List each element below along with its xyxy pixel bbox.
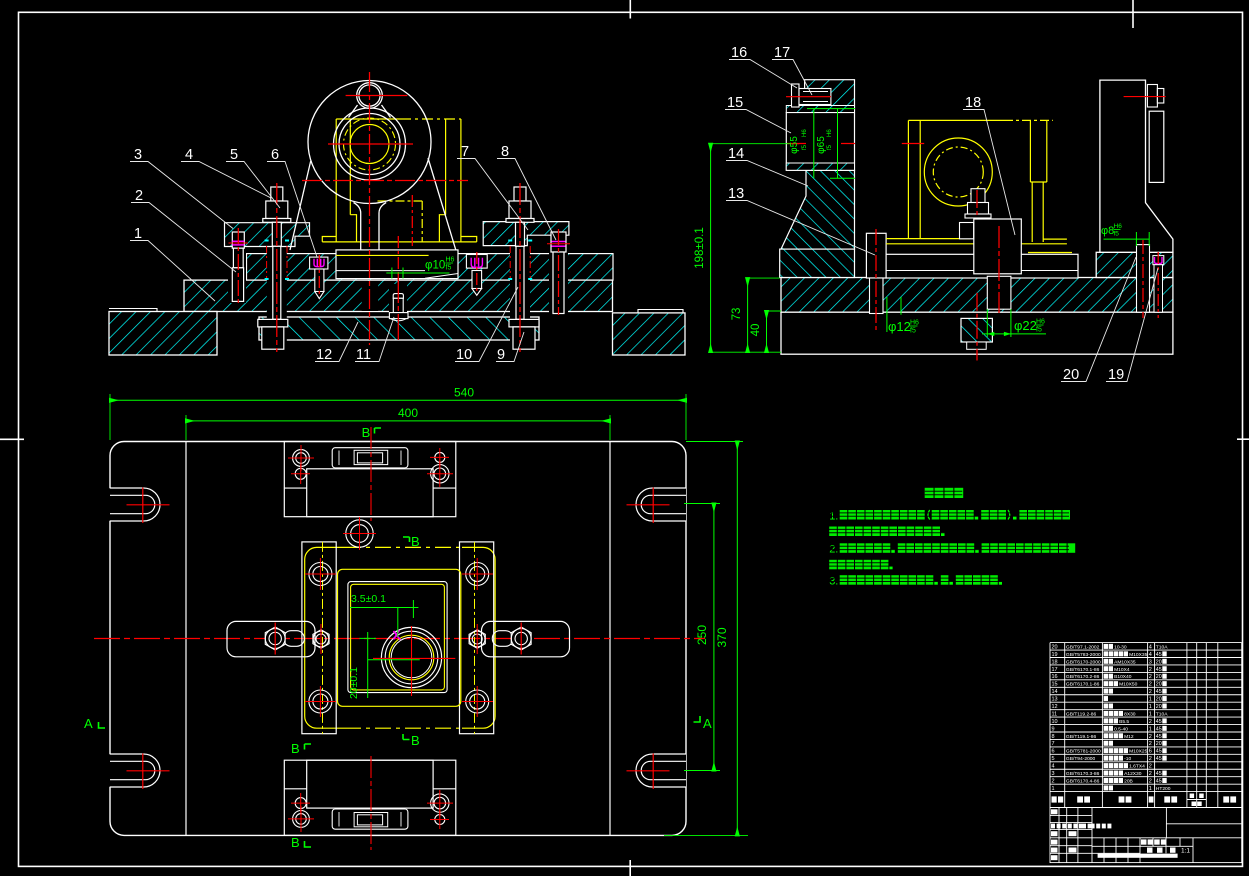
svg-text:6: 6 <box>1149 749 1152 755</box>
svg-text:M12: M12 <box>1124 734 1134 740</box>
svg-text:2: 2 <box>1149 667 1152 673</box>
svg-text:B: B <box>362 425 371 440</box>
svg-text:B: B <box>291 741 300 756</box>
svg-text:2: 2 <box>1149 734 1152 740</box>
svg-text:3: 3 <box>134 147 142 163</box>
svg-text:19: 19 <box>1108 367 1124 383</box>
svg-text:1: 1 <box>134 226 142 242</box>
svg-text:HT200: HT200 <box>1156 786 1171 792</box>
svg-text:20: 20 <box>1156 682 1162 688</box>
svg-text:400: 400 <box>398 406 418 420</box>
svg-text:1.6TX4: 1.6TX4 <box>1129 764 1145 770</box>
svg-text:-10: -10 <box>1124 756 1131 762</box>
svg-text:20: 20 <box>1156 704 1162 710</box>
svg-text:16: 16 <box>1052 674 1058 680</box>
svg-text:M10X50: M10X50 <box>1119 682 1137 688</box>
svg-text:20: 20 <box>1156 659 1162 665</box>
svg-text:GB/T97.1-2002: GB/T97.1-2002 <box>1066 644 1100 650</box>
svg-text:A: A <box>84 716 93 731</box>
svg-text:3: 3 <box>1149 659 1152 665</box>
svg-text:1: 1 <box>1149 711 1152 717</box>
svg-text:B5.5: B5.5 <box>1119 719 1129 725</box>
svg-text:f5: f5 <box>802 144 808 150</box>
svg-text:2: 2 <box>1149 756 1152 762</box>
svg-text:45: 45 <box>1156 667 1162 673</box>
svg-text:20: 20 <box>1063 367 1079 383</box>
svg-text:H6: H6 <box>910 320 919 327</box>
svg-text:250: 250 <box>695 625 709 645</box>
svg-text:f5: f5 <box>1036 327 1042 334</box>
svg-text:45: 45 <box>1156 719 1162 725</box>
svg-text:9: 9 <box>1052 726 1055 732</box>
svg-text:45: 45 <box>1156 779 1162 785</box>
svg-text:M10X4: M10X4 <box>1114 667 1130 673</box>
svg-text:12: 12 <box>1052 704 1058 710</box>
svg-text:45: 45 <box>1156 771 1162 777</box>
svg-text:20: 20 <box>1052 644 1058 650</box>
svg-text:5: 5 <box>230 147 238 163</box>
svg-text:540: 540 <box>454 386 474 400</box>
svg-text:6: 6 <box>271 147 279 163</box>
svg-text:H6: H6 <box>1036 319 1045 326</box>
svg-text:B: B <box>411 733 420 748</box>
svg-text:φ55: φ55 <box>789 136 800 154</box>
svg-text:1:1: 1:1 <box>1181 848 1190 855</box>
svg-text:13: 13 <box>728 186 744 202</box>
svg-text:13: 13 <box>1052 697 1058 703</box>
svg-text:10-30: 10-30 <box>1114 644 1127 650</box>
svg-text:H6: H6 <box>446 257 455 264</box>
svg-text:T10A: T10A <box>1156 644 1168 650</box>
svg-text:M10X35: M10X35 <box>1129 652 1147 658</box>
svg-text:8: 8 <box>501 144 509 160</box>
svg-text:1: 1 <box>1149 786 1152 792</box>
svg-text:f5: f5 <box>910 328 916 335</box>
svg-text:10: 10 <box>1052 719 1058 725</box>
svg-text:A12X30: A12X30 <box>1124 771 1142 777</box>
svg-text:12: 12 <box>316 347 332 363</box>
svg-text:17: 17 <box>1052 667 1058 673</box>
svg-text:15: 15 <box>1052 682 1058 688</box>
svg-text:B10X40: B10X40 <box>1114 674 1132 680</box>
svg-text:AM10X35: AM10X35 <box>1114 659 1136 665</box>
svg-text:45: 45 <box>1156 734 1162 740</box>
svg-text:8: 8 <box>1052 734 1055 740</box>
svg-text:2: 2 <box>1052 779 1055 785</box>
svg-text:9: 9 <box>497 347 505 363</box>
svg-text:370: 370 <box>715 627 729 647</box>
svg-text:2: 2 <box>1149 674 1152 680</box>
svg-text:2: 2 <box>1149 779 1152 785</box>
svg-text:45: 45 <box>1156 756 1162 762</box>
svg-text:11: 11 <box>1052 711 1058 717</box>
svg-text:GB/T5781-2000: GB/T5781-2000 <box>1066 749 1101 755</box>
svg-text:H6: H6 <box>827 129 833 137</box>
svg-text:φ8: φ8 <box>1101 225 1114 237</box>
svg-text:4: 4 <box>185 147 193 163</box>
svg-text:1: 1 <box>1052 786 1055 792</box>
svg-text:φ65: φ65 <box>816 136 827 154</box>
svg-text:1: 1 <box>1149 726 1152 732</box>
svg-text:16: 16 <box>731 45 747 61</box>
svg-text:14: 14 <box>1052 689 1058 695</box>
svg-text:45: 45 <box>1156 726 1162 732</box>
svg-text:7: 7 <box>461 144 469 160</box>
svg-text:40: 40 <box>750 324 762 337</box>
svg-text:18: 18 <box>965 95 981 111</box>
svg-text:A: A <box>703 716 712 731</box>
svg-text:18: 18 <box>1052 659 1058 665</box>
svg-text:20±0.1: 20±0.1 <box>348 667 360 699</box>
svg-text:3: 3 <box>1052 771 1055 777</box>
svg-text:f5: f5 <box>446 265 452 272</box>
svg-text:10: 10 <box>456 347 472 363</box>
svg-text:7: 7 <box>1052 741 1055 747</box>
svg-text:GB/T6170.4-86: GB/T6170.4-86 <box>1066 779 1100 785</box>
svg-text:φ22: φ22 <box>1014 318 1037 333</box>
svg-text:5: 5 <box>1052 756 1055 762</box>
svg-text:2: 2 <box>1149 682 1152 688</box>
svg-text:45: 45 <box>1156 652 1162 658</box>
svg-text:GB/T6170.1-86: GB/T6170.1-86 <box>1066 667 1100 673</box>
svg-text:20B: 20B <box>1124 779 1133 785</box>
svg-text:B: B <box>411 534 420 549</box>
svg-text:GB/T6170.3-86: GB/T6170.3-86 <box>1066 771 1100 777</box>
svg-text:45: 45 <box>1156 749 1162 755</box>
svg-text:1: 1 <box>1149 697 1152 703</box>
svg-text:f5: f5 <box>1114 231 1120 238</box>
svg-text:8X30: 8X30 <box>1124 711 1136 717</box>
svg-text:φ10: φ10 <box>425 260 445 272</box>
svg-text:11: 11 <box>356 347 371 363</box>
svg-text:M10X25: M10X25 <box>1129 749 1147 755</box>
svg-text:15: 15 <box>727 95 743 111</box>
svg-text:GB/T94-2000: GB/T94-2000 <box>1066 756 1096 762</box>
svg-text:2: 2 <box>1149 764 1152 770</box>
svg-text:f5: f5 <box>827 144 833 150</box>
svg-text:GB/T6170.1-86: GB/T6170.1-86 <box>1066 682 1100 688</box>
svg-text:45: 45 <box>1156 689 1162 695</box>
svg-text:4: 4 <box>1149 652 1152 658</box>
svg-text:4: 4 <box>1149 644 1152 650</box>
svg-text:2: 2 <box>1149 771 1152 777</box>
svg-text:73: 73 <box>731 308 743 321</box>
svg-text:H6: H6 <box>1114 223 1123 230</box>
svg-text:17: 17 <box>774 45 790 61</box>
svg-text:GB/T6170.2-86: GB/T6170.2-86 <box>1066 674 1100 680</box>
svg-text:20: 20 <box>1156 674 1162 680</box>
svg-text:T10A: T10A <box>1156 711 1168 717</box>
svg-text:6: 6 <box>1052 749 1055 755</box>
svg-text:GB/T119.1-86: GB/T119.1-86 <box>1066 734 1097 740</box>
svg-text:2: 2 <box>1149 741 1152 747</box>
svg-text:2: 2 <box>135 188 143 204</box>
svg-text:φ12: φ12 <box>888 319 911 334</box>
svg-text:2: 2 <box>1149 719 1152 725</box>
svg-text:19: 19 <box>1052 652 1058 658</box>
svg-text:B: B <box>291 835 300 850</box>
svg-text:GB/T5783-2000: GB/T5783-2000 <box>1066 652 1101 658</box>
svg-text:H6: H6 <box>802 129 808 137</box>
svg-text:2: 2 <box>1149 689 1152 695</box>
svg-text:GB/T6170-2000: GB/T6170-2000 <box>1066 659 1101 665</box>
svg-text:4: 4 <box>1052 764 1055 770</box>
svg-text:1: 1 <box>1149 704 1152 710</box>
svg-text:GB/T119.2-86: GB/T119.2-86 <box>1066 711 1097 717</box>
svg-text:3.5±0.1: 3.5±0.1 <box>351 593 386 605</box>
svg-text:14: 14 <box>728 146 744 162</box>
svg-text:198±0.1: 198±0.1 <box>694 227 706 269</box>
svg-text:20: 20 <box>1156 741 1162 747</box>
svg-text:20: 20 <box>1156 697 1162 703</box>
svg-text:0.5-40: 0.5-40 <box>1114 726 1128 732</box>
